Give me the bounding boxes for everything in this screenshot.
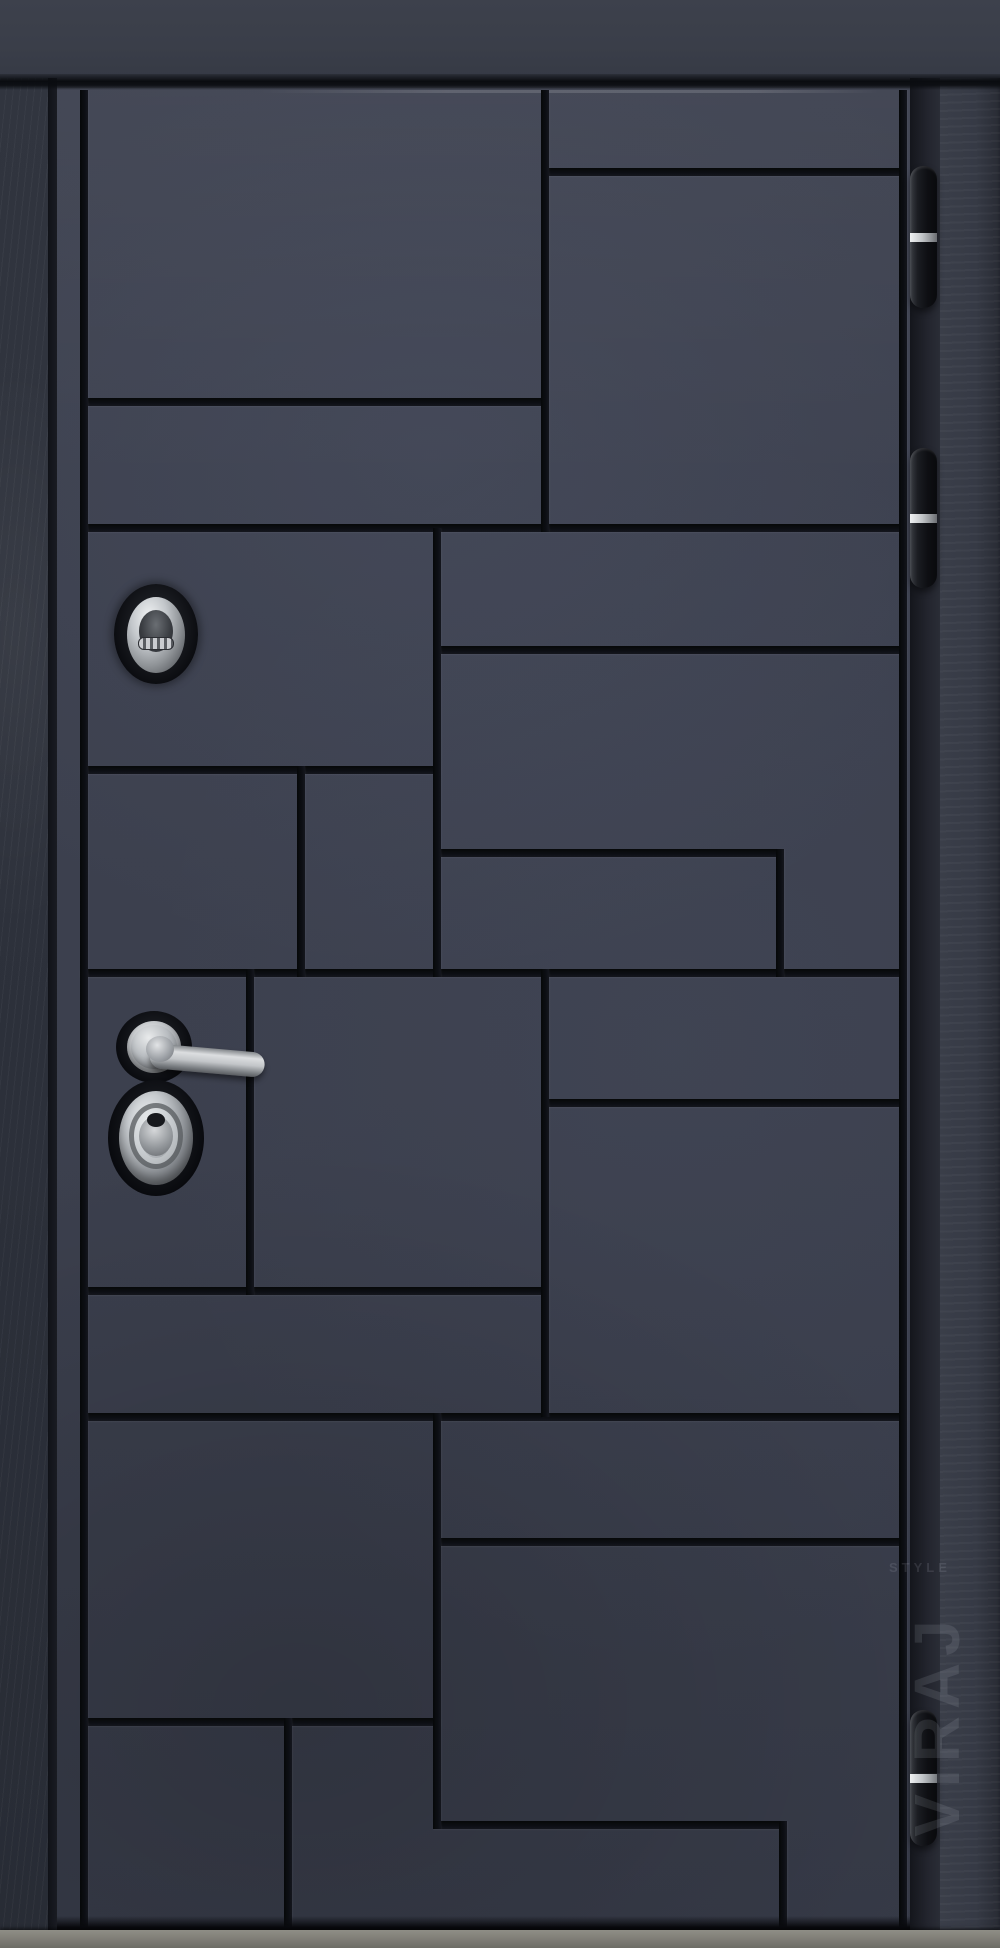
- hinge-chrome-ring: [910, 233, 937, 242]
- panel-groove-horizontal: [80, 524, 907, 532]
- frame-top-shadow: [0, 74, 1000, 90]
- panel-groove-horizontal: [80, 766, 441, 774]
- panel-groove-horizontal: [80, 1413, 907, 1421]
- door-frame-left-jamb: [0, 78, 48, 1930]
- panel-groove-vertical: [779, 1821, 787, 1930]
- top-cylinder-keyway: [138, 637, 174, 650]
- panel-groove-horizontal: [541, 168, 907, 176]
- hinge: [910, 166, 937, 308]
- door-product-photo: STYLE VIRAJ: [0, 0, 1000, 1948]
- watermark-brand-text: VIRAJ: [898, 1575, 978, 1875]
- handle-neck: [146, 1036, 174, 1062]
- panel-groove-vertical: [541, 969, 549, 1417]
- deadbolt-keyhole: [147, 1113, 165, 1127]
- leaf-top-highlight: [260, 90, 880, 93]
- panel-groove-vertical: [433, 528, 441, 977]
- panel-groove-vertical: [80, 90, 88, 1930]
- panel-groove-vertical: [433, 1413, 441, 1829]
- panel-groove-vertical: [297, 766, 305, 977]
- leaf-bottom-shadow: [57, 1916, 910, 1930]
- hinge-chrome-ring: [910, 514, 937, 523]
- door-leaf: [57, 88, 910, 1930]
- hinge: [910, 448, 937, 588]
- panel-groove-horizontal: [80, 398, 549, 406]
- panel-groove-vertical: [776, 849, 784, 977]
- floor-threshold: [0, 1930, 1000, 1948]
- panel-groove-vertical: [541, 90, 549, 532]
- panel-groove-horizontal: [433, 1821, 787, 1829]
- panel-groove-vertical: [284, 1718, 292, 1930]
- door-frame-top: [0, 0, 1000, 78]
- panel-groove-horizontal: [433, 1538, 907, 1546]
- panel-groove-horizontal: [80, 1287, 549, 1295]
- panel-groove-horizontal: [80, 1718, 441, 1726]
- panel-groove-horizontal: [433, 849, 784, 857]
- panel-groove-horizontal: [541, 1099, 907, 1107]
- watermark-sub-text: STYLE: [889, 1560, 969, 1575]
- panel-groove-horizontal: [433, 646, 907, 654]
- panel-groove-vertical: [246, 969, 254, 1295]
- frame-leaf-gap-left: [48, 78, 57, 1930]
